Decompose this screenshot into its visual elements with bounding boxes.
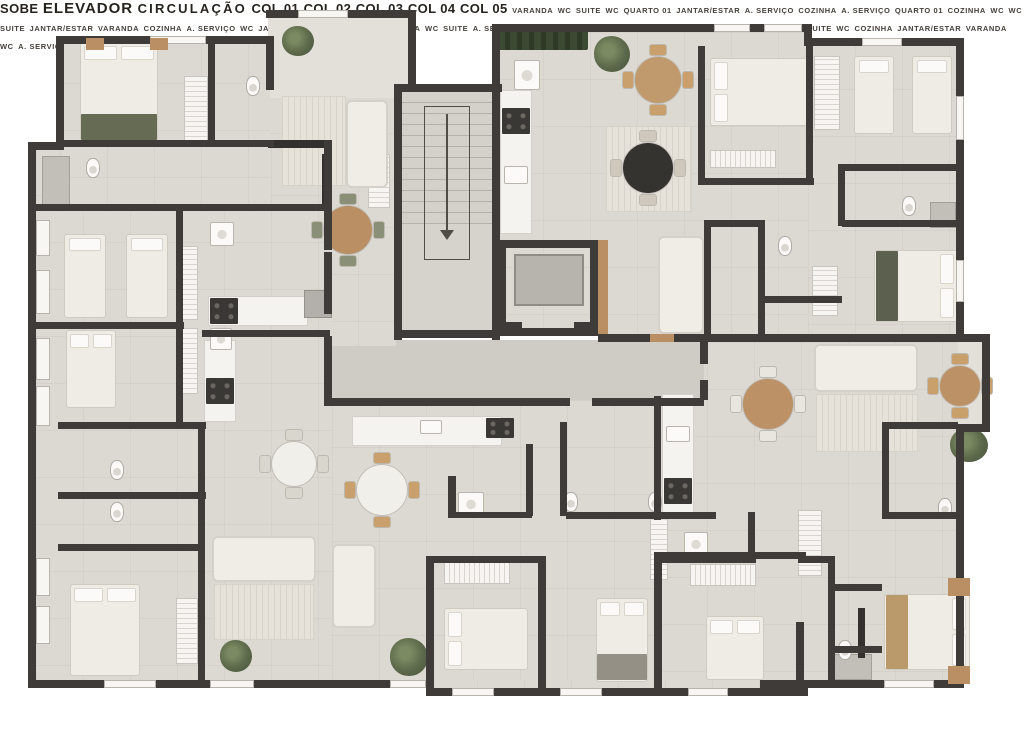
window	[104, 680, 156, 688]
label-circulacao: CIRCULAÇÃO	[138, 1, 247, 16]
window	[390, 680, 426, 688]
chair	[259, 455, 271, 473]
wardrobe	[812, 266, 838, 316]
wood-panel	[598, 240, 608, 334]
wall	[882, 422, 889, 518]
label-col04-wc: WC	[990, 6, 1004, 15]
pillow	[940, 254, 954, 284]
wall	[330, 398, 570, 406]
sofa	[814, 344, 918, 392]
window	[298, 10, 348, 18]
wall	[492, 24, 500, 340]
wardrobe	[690, 564, 756, 586]
chair	[373, 452, 391, 464]
sink	[420, 420, 442, 434]
wall	[838, 164, 845, 226]
label-col01-wc-suite: WC	[836, 24, 850, 33]
wall	[58, 492, 206, 499]
wall	[28, 204, 332, 211]
wood-panel	[948, 666, 970, 684]
wardrobe	[184, 76, 208, 142]
window	[560, 688, 602, 696]
floor-plan: SOBE ELEVADOR CIRCULAÇÃO COL 01 COL 02 C…	[0, 0, 1024, 731]
tv-panel	[268, 140, 326, 148]
label-col05: COL 05	[460, 1, 508, 16]
dining-table	[272, 442, 316, 486]
label-col04-varanda: VARANDA	[98, 24, 139, 33]
window	[862, 38, 902, 46]
rug	[214, 584, 314, 640]
dining-table	[940, 366, 980, 406]
label-col02-jantar: JANTAR/ESTAR	[897, 24, 961, 33]
label-col05-servico: A. SERVIÇO	[745, 6, 794, 15]
wall	[28, 142, 36, 688]
wall	[28, 322, 184, 329]
wall	[590, 240, 598, 330]
chair	[373, 221, 385, 239]
pillow	[714, 62, 728, 90]
window	[36, 270, 50, 314]
stove	[664, 478, 692, 504]
window	[36, 386, 50, 426]
pillow	[93, 334, 112, 348]
label-col05-wc2: WC	[605, 6, 619, 15]
wood-panel	[650, 334, 674, 342]
wall	[208, 36, 215, 144]
toilet	[110, 502, 124, 522]
label-col04-cozinha: COZINHA	[948, 6, 986, 15]
pillow	[917, 60, 947, 73]
chair	[951, 407, 969, 419]
wall	[698, 178, 814, 185]
wall	[654, 558, 662, 688]
stairs-down-arrow-icon	[446, 114, 448, 230]
window	[956, 260, 964, 302]
wall	[58, 422, 206, 429]
wall	[806, 46, 813, 182]
dining-table	[357, 465, 407, 515]
wall	[956, 424, 964, 682]
pillow	[710, 620, 733, 634]
wall	[56, 36, 64, 150]
wall	[176, 322, 183, 428]
wall	[654, 512, 716, 519]
toilet	[778, 236, 792, 256]
wall	[704, 220, 762, 227]
wall	[324, 140, 332, 250]
wall	[700, 380, 708, 400]
chair	[759, 430, 777, 442]
window	[688, 688, 728, 696]
wall	[828, 646, 882, 653]
wall	[982, 338, 990, 430]
chair	[373, 516, 391, 528]
wall	[498, 240, 598, 248]
wall	[58, 544, 204, 551]
wall	[426, 556, 434, 694]
wall	[56, 140, 274, 147]
bed-throw	[597, 654, 647, 680]
wall	[882, 422, 958, 429]
label-col02-cozinha: COZINHA	[854, 24, 892, 33]
stove	[206, 378, 234, 404]
label-col03-wc-suite: WC	[425, 24, 439, 33]
wall	[894, 334, 990, 342]
wall	[598, 334, 650, 342]
pillow	[74, 588, 103, 602]
washing-machine	[514, 60, 540, 90]
wall	[566, 512, 660, 519]
chair	[622, 71, 634, 89]
pillow	[624, 602, 644, 616]
window	[36, 558, 50, 596]
wardrobe	[710, 150, 776, 168]
dining-table	[623, 143, 673, 193]
label-col04-servico: A. SERVIÇO	[841, 6, 890, 15]
label-col04-suite: SUITE	[0, 24, 25, 33]
wall	[176, 204, 183, 330]
wall	[526, 444, 533, 516]
chair	[730, 395, 742, 413]
plant	[390, 638, 428, 676]
wall	[760, 296, 842, 303]
wall	[592, 398, 704, 406]
chair	[927, 377, 939, 395]
chair	[344, 481, 356, 499]
wall	[748, 512, 755, 562]
wall	[838, 164, 964, 171]
chair	[794, 395, 806, 413]
toilet	[246, 76, 260, 96]
wall	[496, 328, 600, 336]
chair	[408, 481, 420, 499]
wardrobe	[176, 598, 198, 664]
wall	[654, 396, 661, 520]
stairs-down-arrowhead-icon	[440, 230, 454, 247]
label-col03-wc: WC	[240, 24, 254, 33]
pillow	[714, 94, 728, 122]
label-col04-jantar: JANTAR/ESTAR	[30, 24, 94, 33]
hedge-planter	[498, 30, 588, 50]
staircase	[402, 92, 492, 330]
label-elevador: ELEVADOR	[43, 0, 133, 17]
plant	[282, 26, 314, 56]
pillow	[940, 288, 954, 318]
window	[764, 24, 802, 32]
chair	[759, 366, 777, 378]
window	[36, 606, 50, 644]
sofa	[346, 100, 388, 188]
sink	[666, 426, 690, 442]
wall	[202, 330, 330, 337]
sofa	[658, 236, 704, 334]
chair	[639, 130, 657, 142]
wall	[324, 336, 332, 406]
wall	[448, 512, 532, 518]
plant	[594, 36, 630, 72]
label-col04-quarto1: QUARTO 01	[895, 6, 943, 15]
shower	[832, 654, 872, 680]
wall	[430, 556, 542, 563]
wall	[698, 46, 705, 184]
pillow	[107, 588, 136, 602]
pillow	[859, 60, 889, 73]
label-col05-quarto1: QUARTO 01	[624, 6, 672, 15]
chair	[649, 104, 667, 116]
wall	[700, 342, 708, 364]
label-col04-wc2: WC	[1009, 6, 1023, 15]
toilet	[86, 158, 100, 178]
label-col02-wc: WC	[0, 42, 14, 51]
label-col03-suite: SUITE	[443, 24, 468, 33]
chair	[674, 159, 686, 177]
chair	[682, 71, 694, 89]
window	[36, 338, 50, 380]
wall	[828, 584, 882, 591]
bed-throw	[886, 595, 908, 669]
wall	[798, 556, 832, 563]
wall	[396, 330, 500, 338]
wall	[704, 220, 711, 336]
toilet	[110, 460, 124, 480]
wardrobe	[444, 562, 510, 584]
stove	[210, 298, 238, 324]
window	[956, 96, 964, 140]
wall	[674, 334, 704, 342]
wardrobe	[798, 510, 822, 576]
pillow	[448, 612, 462, 637]
window	[714, 24, 750, 32]
sofa	[332, 544, 376, 628]
elevator-car	[514, 254, 584, 306]
wardrobe	[814, 56, 840, 130]
wall	[758, 220, 765, 336]
bed-throw	[81, 114, 157, 140]
wall	[654, 556, 756, 563]
label-col05-varanda: VARANDA	[512, 6, 553, 15]
pillow	[69, 238, 101, 251]
toilet	[902, 196, 916, 216]
chair	[649, 44, 667, 56]
wall	[538, 556, 546, 694]
stove	[502, 108, 530, 134]
label-sobe: SOBE	[0, 1, 38, 16]
washing-machine	[210, 222, 234, 246]
label-col05-suite: SUITE	[576, 6, 601, 15]
pillow	[737, 620, 760, 634]
label-col05-wc: WC	[558, 6, 572, 15]
stove	[486, 418, 514, 438]
chair	[339, 193, 357, 205]
dining-table	[635, 57, 681, 103]
floor-area	[330, 340, 704, 400]
pillow	[448, 641, 462, 666]
chair	[311, 221, 323, 239]
wall	[882, 512, 958, 519]
sink	[504, 166, 528, 184]
sofa	[212, 536, 316, 582]
label-col05-jantar: JANTAR/ESTAR	[676, 6, 740, 15]
label-col02-varanda: VARANDA	[966, 24, 1007, 33]
wood-panel	[86, 38, 104, 50]
dining-table	[743, 379, 793, 429]
window	[36, 220, 50, 256]
pillow	[600, 602, 620, 616]
bed-throw	[876, 251, 898, 321]
chair	[285, 487, 303, 499]
chair	[285, 429, 303, 441]
pillow	[70, 334, 89, 348]
chair	[317, 455, 329, 473]
chair	[339, 255, 357, 267]
shower	[42, 156, 70, 208]
chair	[951, 353, 969, 365]
wall	[796, 622, 804, 688]
pillow	[131, 238, 163, 251]
window	[884, 680, 934, 688]
wall	[198, 422, 205, 682]
wall	[394, 84, 402, 340]
window	[210, 680, 254, 688]
label-col05-cozinha: COZINHA	[798, 6, 836, 15]
wood-panel	[948, 578, 970, 596]
wall	[560, 422, 567, 516]
window	[452, 688, 494, 696]
wall	[828, 556, 835, 682]
wall	[266, 36, 274, 90]
wood-panel	[150, 38, 168, 50]
wall	[408, 10, 416, 92]
chair	[610, 159, 622, 177]
label-col03-servico: A. SERVIÇO	[186, 24, 235, 33]
wall	[842, 220, 964, 227]
wall	[324, 252, 332, 314]
label-col03-cozinha: COZINHA	[144, 24, 182, 33]
plant	[220, 640, 252, 672]
wall	[448, 476, 456, 518]
chair	[639, 194, 657, 206]
floor-area	[268, 12, 412, 98]
